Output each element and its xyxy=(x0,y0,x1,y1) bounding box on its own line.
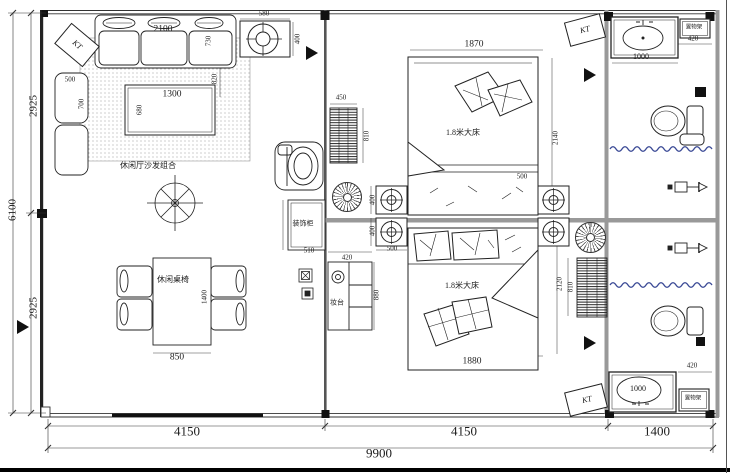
dim-armchair-width: 500 xyxy=(65,77,76,84)
armchair-left-2 xyxy=(55,125,88,175)
sheet-border-right xyxy=(726,0,727,473)
label-living-sofa-area: 休闲厅沙发组合 xyxy=(120,162,176,170)
ceiling-fan-icon xyxy=(575,222,606,253)
dim-rack-bath-bottom-width: 420 xyxy=(687,363,698,370)
dim-sofa-gap: 820 xyxy=(212,74,219,85)
dim-dresser-length: 880 xyxy=(374,290,381,301)
label-bed-upper: 1.8米大床 xyxy=(446,129,480,137)
dim-dining-length: 1400 xyxy=(202,290,209,304)
dim-sink-top-width: 1000 xyxy=(633,53,649,61)
switch-symbols xyxy=(299,269,313,299)
dim-rack-bath-top-width: 420 xyxy=(688,36,699,43)
dim-dining-width: 850 xyxy=(170,353,184,363)
dim-cabinet-width: 510 xyxy=(304,248,315,255)
dim-ac-top-width: 580 xyxy=(259,11,270,18)
dim-ac-mid-w1: 500 xyxy=(387,246,398,253)
sheet-border-bottom xyxy=(0,468,730,472)
dim-coffee-table-width: 1300 xyxy=(163,90,182,100)
ceiling-fan-symbol xyxy=(147,175,203,231)
dim-rack-upper-length: 810 xyxy=(364,131,371,142)
dim-left-lower: 2925 xyxy=(29,297,40,319)
label-bed-lower: 1.8米大床 xyxy=(445,282,479,290)
floor-plan: KT KT KT 2100 730 820 580 400 500 700 13… xyxy=(0,0,730,473)
lounge-chair xyxy=(275,142,323,190)
shower-curtain-top xyxy=(610,147,712,152)
dim-ac-top-height: 400 xyxy=(295,34,302,45)
toilet-top-icon xyxy=(651,106,704,145)
label-rack-bottom: 置物架 xyxy=(685,396,702,402)
toilet-bottom-icon xyxy=(651,306,703,336)
dim-bed-upper-length: 2140 xyxy=(553,131,560,145)
dim-ac-mid-w2: 500 xyxy=(517,174,528,181)
dim-bed-lower-width: 1880 xyxy=(463,357,482,367)
dim-sink-bottom-width: 1000 xyxy=(630,385,646,393)
dim-dresser-width: 420 xyxy=(342,255,353,262)
dim-bed-upper-width: 1870 xyxy=(465,40,484,50)
dresser xyxy=(328,262,372,330)
label-dresser: 妆台 xyxy=(330,300,344,307)
label-dining-set: 休闲桌椅 xyxy=(157,276,189,284)
dim-sofa-width: 2100 xyxy=(154,25,173,35)
fan-hub xyxy=(343,193,352,202)
wall-box-top xyxy=(695,87,706,97)
fan-hub xyxy=(586,233,595,242)
dim-left-upper: 2925 xyxy=(29,95,40,117)
label-rack-top: 置物架 xyxy=(686,25,703,31)
dim-bed-lower-length: 2120 xyxy=(557,277,564,291)
floor-plan-drawing xyxy=(0,0,730,473)
wall-box-bottom xyxy=(696,337,705,346)
sofa xyxy=(95,15,236,68)
shower-head-bottom-icon xyxy=(668,243,707,253)
rack-lower-hatch xyxy=(577,258,607,317)
dim-sofa-depth: 730 xyxy=(206,36,213,47)
dim-left-total: 6100 xyxy=(8,199,19,221)
rack-upper-hatch xyxy=(330,108,357,163)
dim-rack-lower-length: 810 xyxy=(568,282,575,293)
bed-lower xyxy=(408,228,538,370)
dim-bottom-right: 1400 xyxy=(644,425,670,438)
dim-rack-upper-width: 450 xyxy=(336,95,347,102)
dim-bottom-left: 4150 xyxy=(174,425,200,438)
dim-bottom-total: 9900 xyxy=(366,447,392,460)
shower-curtain-bottom xyxy=(610,283,712,288)
dim-coffee-table-depth: 680 xyxy=(137,105,144,116)
dining-table-set xyxy=(117,258,246,345)
ceiling-fan-icon xyxy=(332,182,362,212)
ac-vent-top-icon xyxy=(240,21,290,57)
dim-armchair-depth: 700 xyxy=(79,99,86,110)
shower-head-top-icon xyxy=(668,182,707,192)
dim-ac-mid-h2: 400 xyxy=(370,226,377,237)
dim-ac-mid-h1: 400 xyxy=(370,195,377,206)
dim-bottom-mid: 4150 xyxy=(451,425,477,438)
label-cabinet: 装饰柜 xyxy=(293,221,314,228)
